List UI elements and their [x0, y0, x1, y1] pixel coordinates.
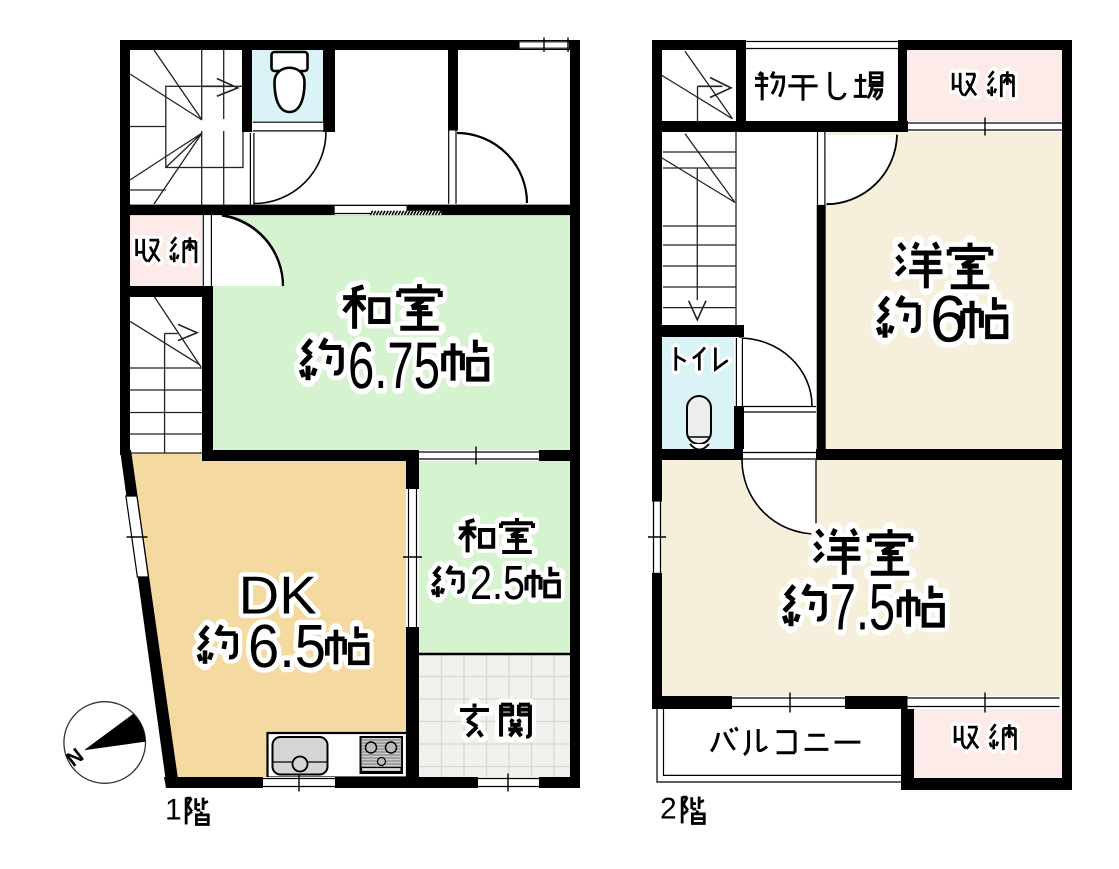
svg-text:1: 1 [165, 794, 182, 827]
svg-text:2.5: 2.5 [470, 557, 525, 610]
svg-text:6.75: 6.75 [348, 328, 440, 402]
svg-text:7.5: 7.5 [830, 570, 895, 644]
svg-text:6.5: 6.5 [248, 612, 326, 680]
svg-text:2: 2 [660, 793, 677, 826]
